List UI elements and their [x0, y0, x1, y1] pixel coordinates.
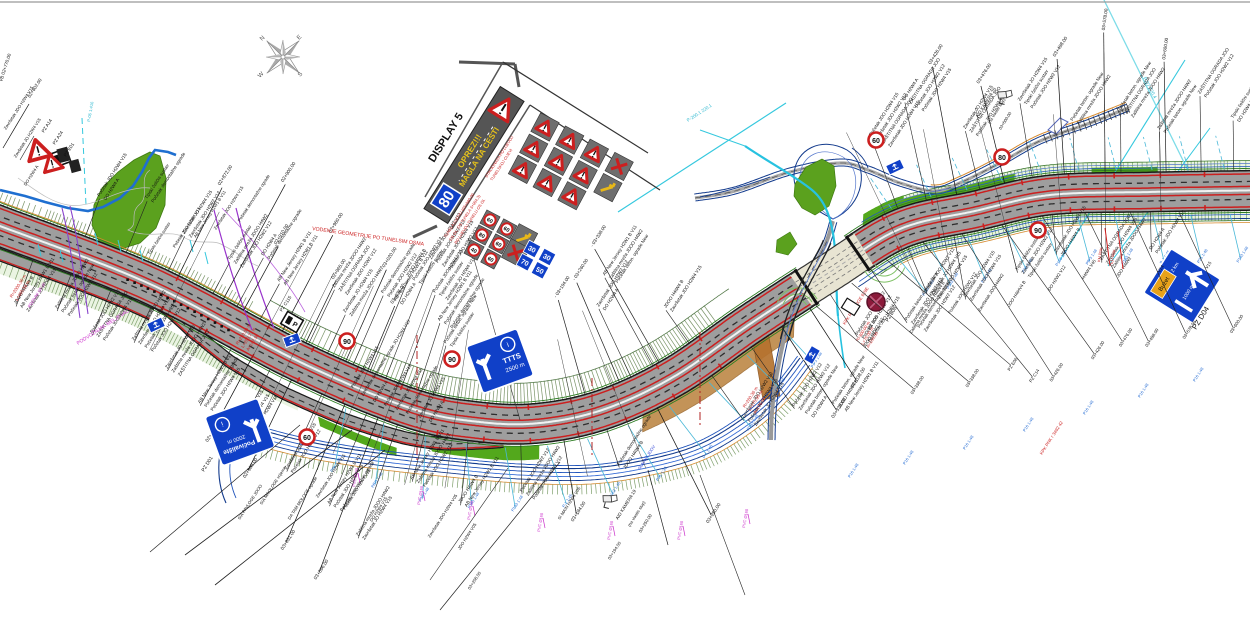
svg-text:60: 60: [303, 435, 311, 442]
svg-text:60: 60: [872, 138, 880, 145]
svg-text:90: 90: [1034, 228, 1042, 235]
svg-text:80: 80: [998, 155, 1006, 162]
svg-text:90: 90: [343, 339, 351, 346]
svg-text:90: 90: [448, 357, 456, 364]
